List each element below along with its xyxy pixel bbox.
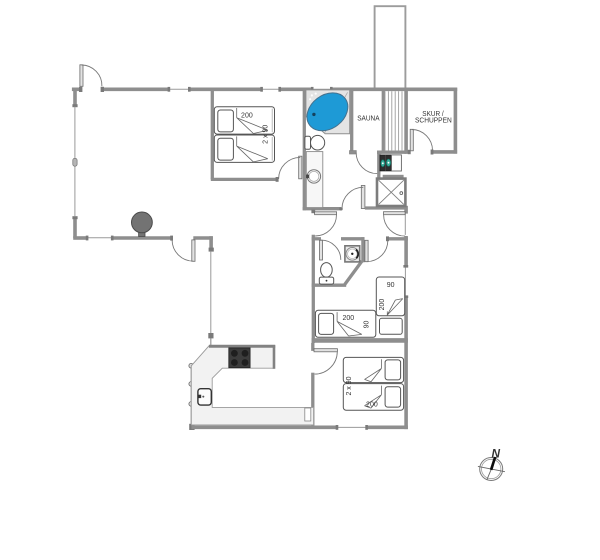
svg-text:200: 200 (379, 299, 386, 311)
svg-text:2 x 90: 2 x 90 (346, 376, 353, 395)
svg-text:200: 200 (366, 401, 378, 408)
svg-text:SAUNA: SAUNA (357, 116, 380, 123)
svg-text:N: N (492, 447, 501, 461)
svg-text:200: 200 (241, 112, 253, 119)
svg-text:SCHUPPEN: SCHUPPEN (415, 117, 452, 124)
svg-text:90: 90 (387, 282, 395, 289)
svg-text:90: 90 (364, 321, 371, 329)
svg-text:2 x 90: 2 x 90 (263, 125, 270, 144)
svg-text:200: 200 (342, 315, 354, 322)
